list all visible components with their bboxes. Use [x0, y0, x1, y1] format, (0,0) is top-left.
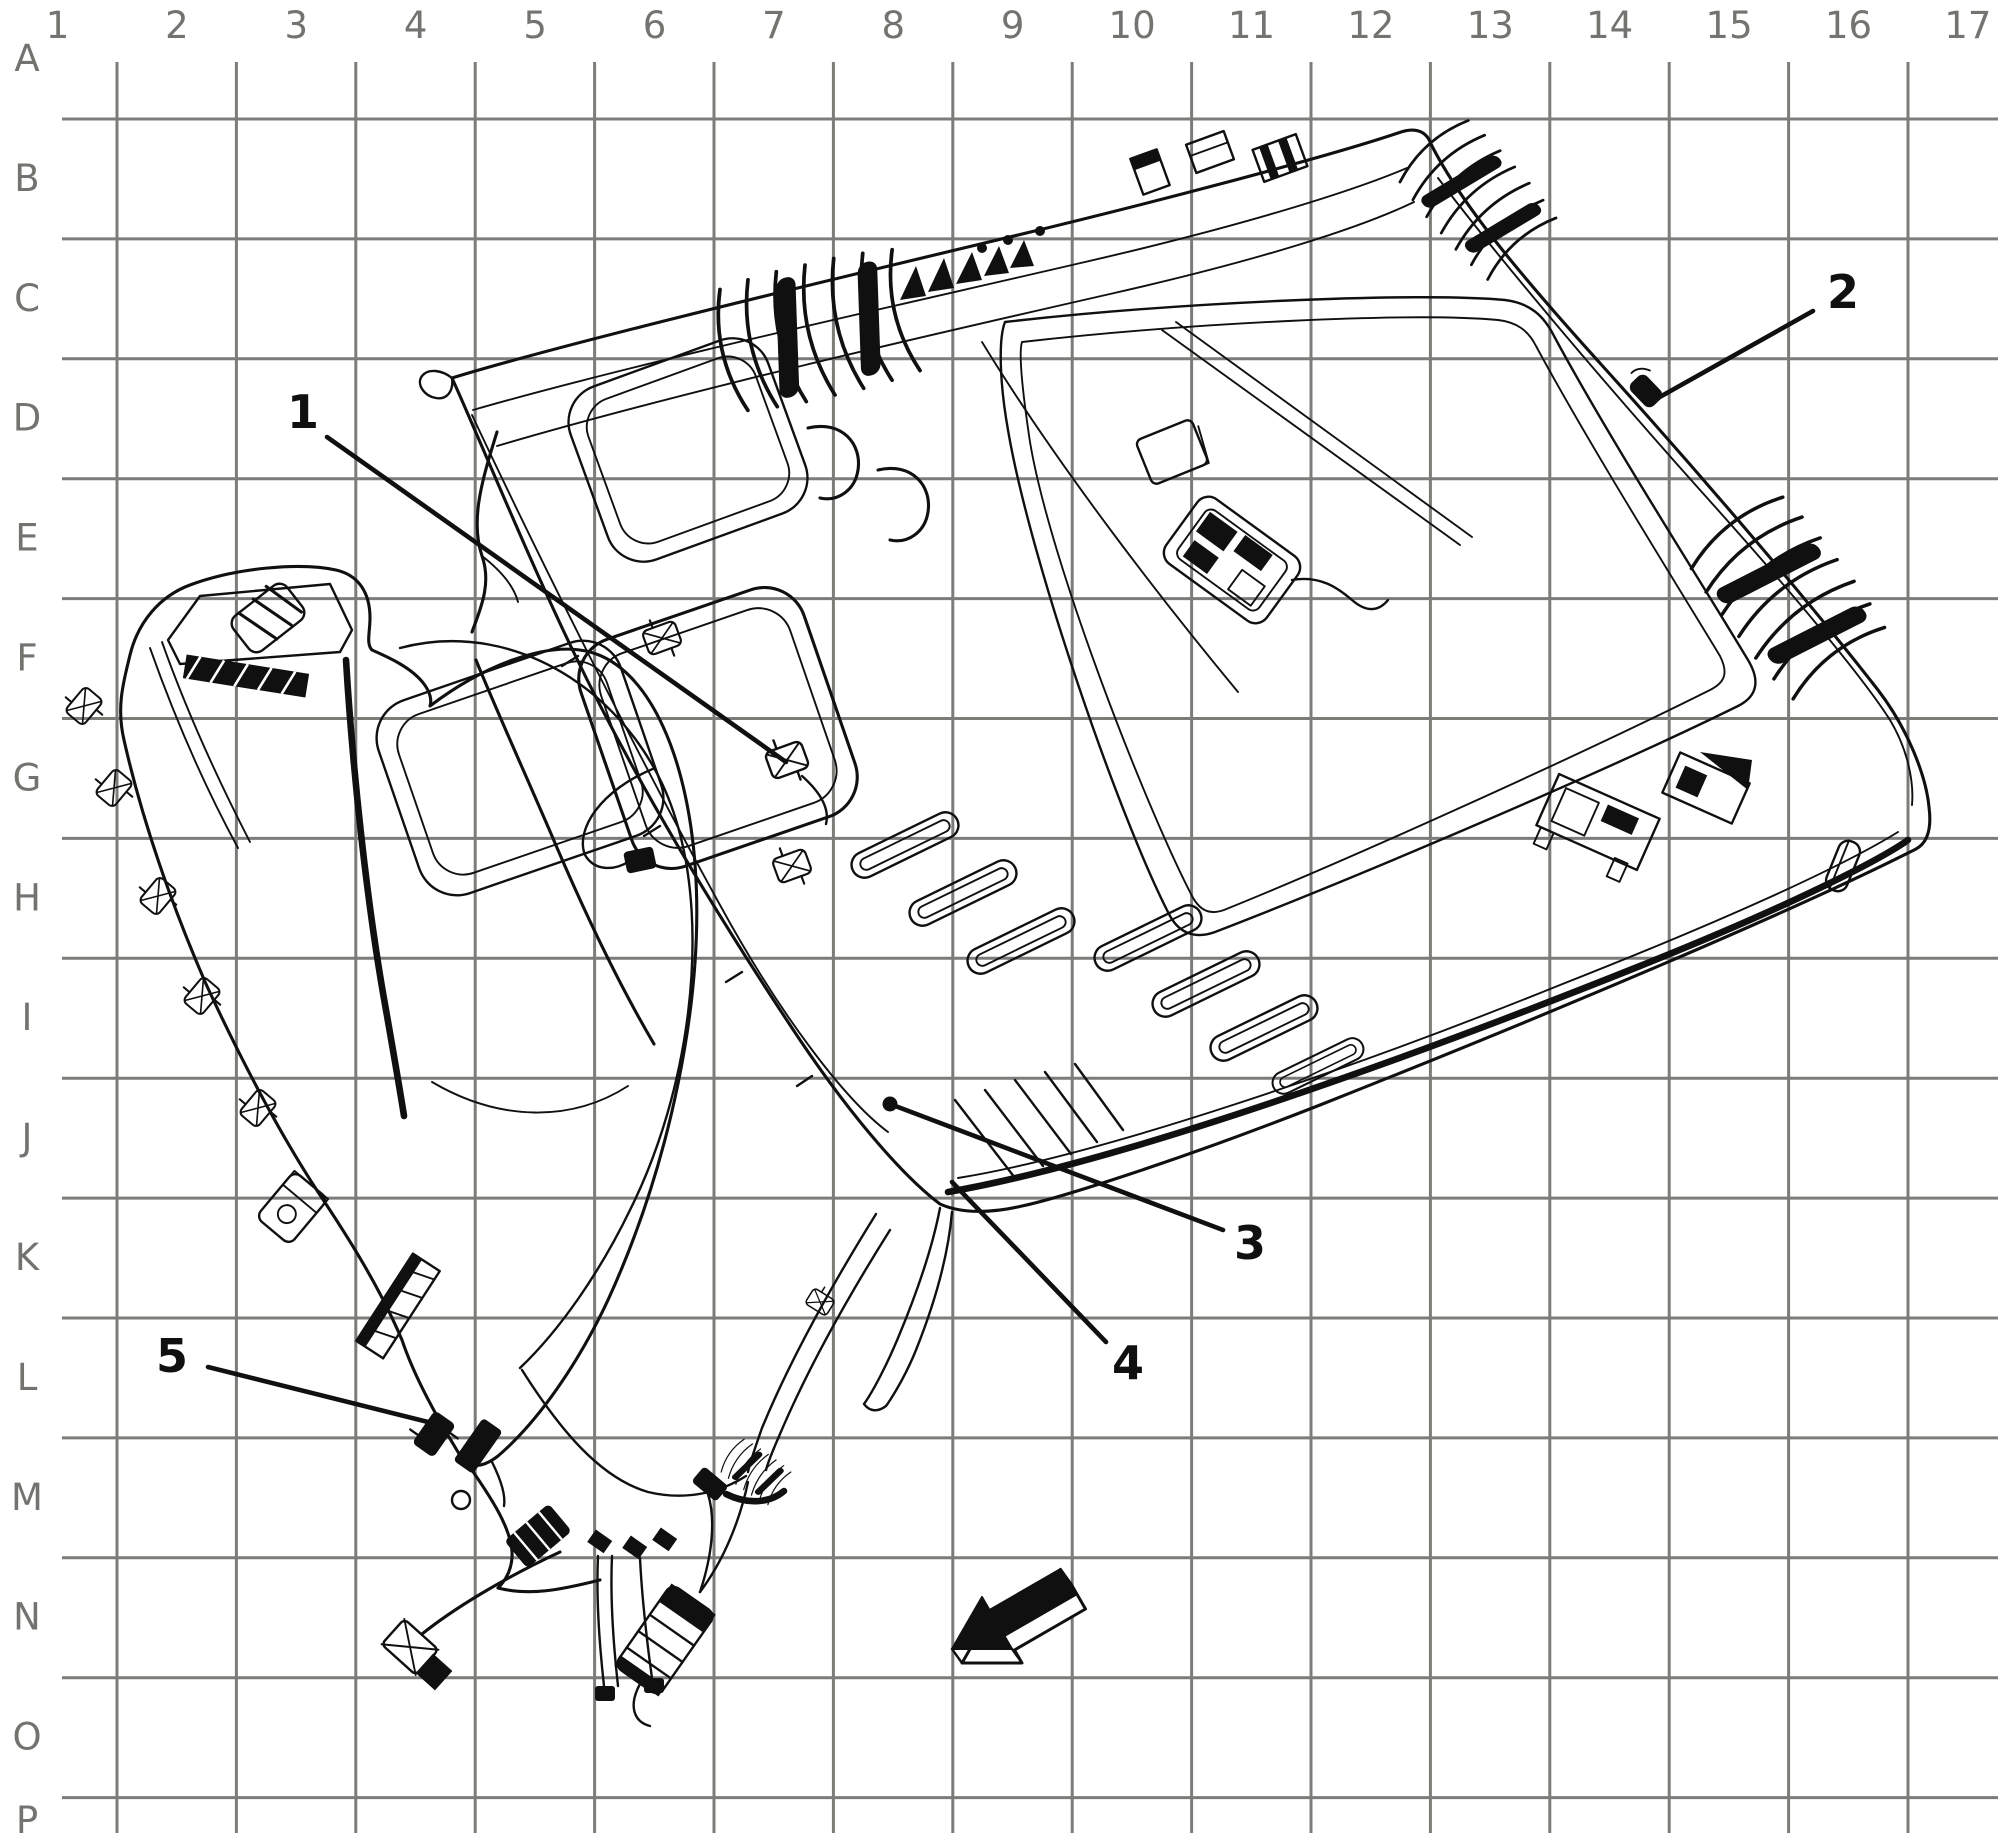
harness-branch [482, 556, 518, 602]
sunroof-divider [1162, 322, 1472, 545]
grid-row-label: J [20, 1116, 33, 1159]
grid-row-label: L [17, 1356, 38, 1399]
grid-row-label: C [14, 277, 40, 320]
ip-outline [121, 566, 697, 1465]
headliner-assembly [420, 112, 1930, 1506]
clip-tail-wire [802, 776, 827, 824]
grid-column-label: 14 [1586, 4, 1633, 47]
connector-b [614, 1584, 716, 1697]
overhead-console-bracket [1158, 491, 1305, 629]
ip-tail-bracket [356, 1254, 439, 1359]
visor-rod-hooks [808, 426, 929, 540]
front-corner-knob [420, 371, 452, 398]
grid-row-label: A [14, 37, 39, 80]
grid-row-label: H [13, 876, 41, 919]
grid-row-label: O [12, 1716, 41, 1759]
a-pillar-garnish [748, 1214, 890, 1472]
grid-column-label: 1 [46, 4, 70, 47]
callout-3-number: 3 [1234, 1216, 1266, 1270]
wiring-harness-group [382, 1456, 748, 1726]
pillar-wire-end [691, 1466, 728, 1502]
connector-a-cap [416, 1654, 453, 1691]
front-band-teeth [900, 240, 1034, 300]
pillar-corner-tail [864, 1208, 952, 1410]
front-opening-frame [567, 576, 868, 880]
console-wire [1292, 579, 1388, 609]
grid-column-label: 11 [1228, 4, 1275, 47]
grid-column-label: 5 [523, 4, 547, 47]
service-diagram-page: 1234567891011121314151617 ABCDEFGHIJKLMN… [0, 0, 1998, 1833]
panel-crease [982, 342, 1238, 692]
callout-5-leader [208, 1367, 436, 1424]
grid-row-label: G [13, 756, 42, 799]
grid-row-label: E [15, 517, 38, 560]
band-rivet [977, 243, 987, 253]
rear-vent-slots [847, 808, 1367, 1098]
grid-column-label: 16 [1825, 4, 1872, 47]
callout-4: 4 [952, 1182, 1144, 1390]
rear-edge-band [948, 840, 1908, 1192]
grid-column-label: 13 [1467, 4, 1514, 47]
front-direction-arrow-icon [952, 1569, 1086, 1663]
ip-tail-grommet [453, 1418, 502, 1474]
grid-column-label: 17 [1944, 4, 1991, 47]
grid-column-label: 12 [1347, 4, 1394, 47]
grid-column-label: 9 [1001, 4, 1025, 47]
callout-4-number: 4 [1112, 1336, 1144, 1390]
callout-2: 2 [1622, 265, 1859, 410]
grid-column-label: 3 [285, 4, 309, 47]
grid-column-label: 8 [882, 4, 906, 47]
ip-pad-crease [432, 1082, 628, 1113]
grid-row-label: F [16, 637, 37, 680]
band-bracket [1186, 131, 1234, 173]
roof-pad [1135, 417, 1212, 485]
grid-row-label: M [11, 1476, 43, 1519]
grid-row-label: P [16, 1799, 38, 1833]
grid-row-label: I [22, 996, 33, 1039]
lamp-connector [623, 846, 657, 874]
clip-2-target [1622, 363, 1669, 411]
ip-circle-clip [256, 1171, 328, 1245]
service-diagram-canvas: 1234567891011121314151617 ABCDEFGHIJKLMN… [0, 0, 1998, 1833]
callout-5-number: 5 [156, 1329, 188, 1383]
harness-clip-5 [405, 1405, 464, 1463]
tail-tip-line [492, 1462, 504, 1506]
callout-2-number: 2 [1827, 265, 1859, 319]
reference-grid [62, 62, 1998, 1833]
grid-column-label: 4 [404, 4, 428, 47]
grid-row-label: N [13, 1596, 41, 1639]
grid-row-label: K [15, 1236, 41, 1279]
callout-3-dot [883, 1097, 898, 1112]
grid-column-label: 7 [762, 4, 786, 47]
grommet-hole [452, 1491, 470, 1509]
grid-column-labels: 1234567891011121314151617 [46, 4, 1992, 47]
grid-column-label: 2 [165, 4, 189, 47]
band-bracket [1253, 134, 1308, 182]
band-rivet [1035, 226, 1045, 236]
grid-row-label: D [13, 397, 42, 440]
harness-main [462, 1456, 512, 1588]
ip-defrost-slot [183, 654, 309, 697]
grid-column-label: 10 [1109, 4, 1156, 47]
grid-row-label: B [14, 157, 39, 200]
rear-pennant [1700, 752, 1752, 790]
grid-column-label: 6 [643, 4, 667, 47]
band-bracket [1130, 149, 1169, 194]
grid-row-labels: ABCDEFGHIJKLMNOP [11, 37, 43, 1833]
grid-column-label: 15 [1706, 4, 1753, 47]
band-rivet [1003, 235, 1013, 245]
callout-1-number: 1 [287, 385, 319, 439]
